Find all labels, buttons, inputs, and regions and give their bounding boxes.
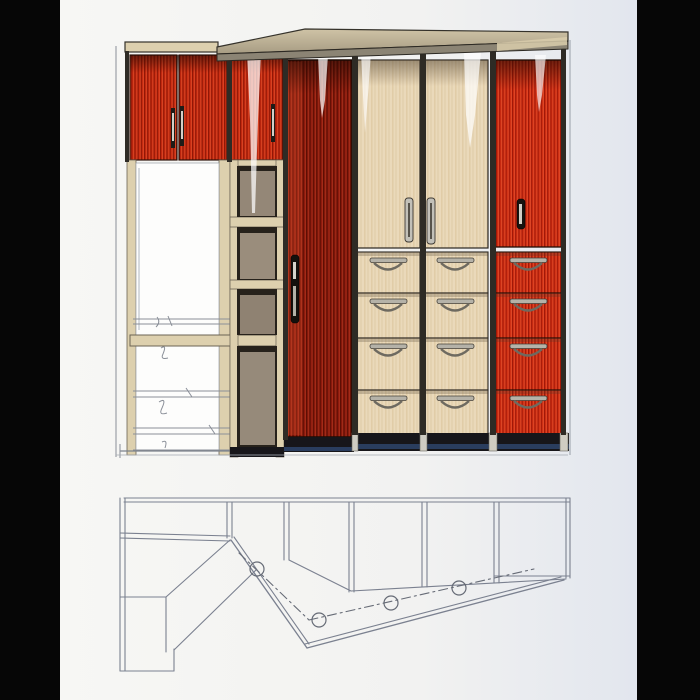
maroon-handle-metal [293, 286, 296, 316]
main-plinth-blue [353, 444, 569, 449]
plinth-leg [560, 433, 568, 451]
drawer-gap-shade [494, 390, 562, 394]
maroon-door-highlight [287, 62, 302, 435]
drawer-gap-shade [424, 338, 488, 342]
cubby-interior [240, 352, 275, 445]
drawer-gap-shade [494, 293, 562, 297]
drawer-pull-plate [370, 299, 407, 304]
cubby-interior [240, 233, 275, 279]
drawer-pull-plate [437, 299, 474, 304]
frame-post [283, 51, 288, 440]
drawer-gap-shade [494, 252, 562, 256]
drawer-pull-plate [370, 396, 407, 401]
cubby-interior [240, 171, 275, 216]
drawer-pull-plate [370, 344, 407, 349]
wardrobe-elevation-drawing [116, 29, 570, 458]
white-open-compartment [136, 163, 219, 451]
drawer-gap-shade [357, 390, 420, 394]
drawer-gap-shade [357, 252, 420, 256]
drawer-gap-shade [357, 338, 420, 342]
white-unit-frame-left [127, 160, 136, 455]
shelf-band [130, 335, 286, 346]
photo-of-furniture-rendering [0, 0, 700, 700]
frame-post [490, 51, 496, 435]
drawer-pull-plate [510, 299, 547, 304]
maroon-handle-metal [293, 262, 296, 279]
frame-post [561, 45, 566, 435]
mid-door-handle-metal [272, 109, 274, 136]
door-b-handle-metal [181, 111, 183, 139]
cubby-interior [240, 295, 275, 334]
frame-post [352, 51, 358, 435]
maroon-plinth-blue [284, 447, 354, 451]
drawer-gap-shade [424, 293, 488, 297]
red-door-handle-metal [519, 204, 522, 224]
drawer-pull-plate [437, 258, 474, 263]
cubby-frame-left [230, 160, 238, 457]
upper-red-shade [130, 55, 227, 73]
beech-door-right-handle-slot [430, 203, 432, 239]
drawer-pull-plate [437, 344, 474, 349]
cubby-shelf [230, 217, 284, 227]
drawer-gap-shade [357, 293, 420, 297]
drawer-pull-plate [510, 258, 547, 263]
frame-post [227, 51, 232, 162]
drawer-gap-shade [424, 252, 488, 256]
plinth-leg [489, 433, 497, 451]
drawer-pull-plate [437, 396, 474, 401]
plinth-leg [420, 433, 427, 451]
cubby-shelf [230, 280, 284, 289]
drawing-canvas [0, 0, 700, 700]
drawer-pull-plate [510, 396, 547, 401]
top-rail-left [125, 42, 218, 52]
beech-door-left-handle-slot [408, 203, 410, 237]
white-unit-frame-right [219, 160, 230, 455]
drawer-gap-shade [424, 390, 488, 394]
drawer-pull-plate [510, 344, 547, 349]
red-tall-door-shade [494, 60, 562, 90]
frame-post [125, 51, 129, 162]
frame-post [420, 51, 426, 435]
plinth-leg [352, 433, 358, 451]
cubby-frame-right [276, 160, 284, 457]
drawer-pull-plate [370, 258, 407, 263]
door-a-handle-metal [172, 113, 174, 141]
drawer-gap-shade [494, 338, 562, 342]
